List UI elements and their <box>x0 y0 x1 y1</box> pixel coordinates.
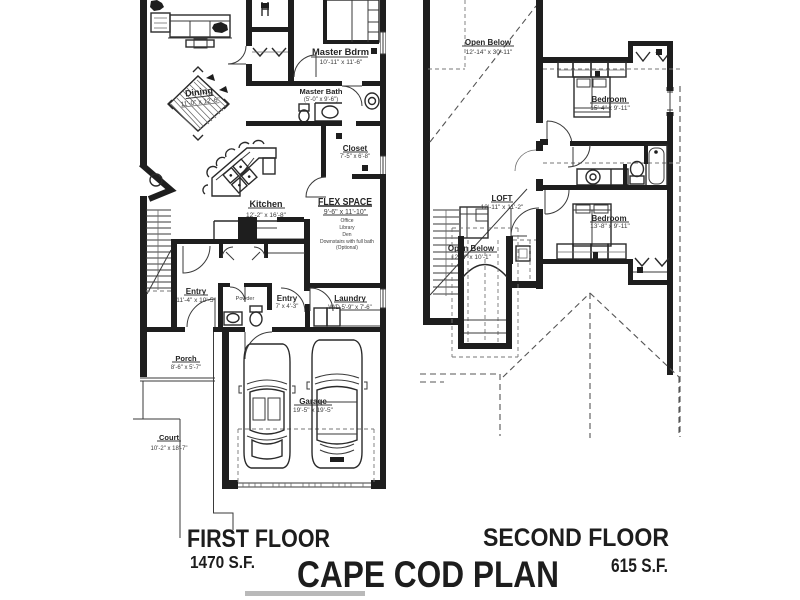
svg-text:8'-6" x 5'-7": 8'-6" x 5'-7" <box>171 365 201 371</box>
svg-text:Den: Den <box>342 232 351 238</box>
svg-text:7' x 4'-3": 7' x 4'-3" <box>276 304 299 310</box>
svg-text:19'-5" x 19'-5": 19'-5" x 19'-5" <box>293 407 334 414</box>
svg-text:10'-11" x 11'-6": 10'-11" x 11'-6" <box>320 59 363 66</box>
svg-text:Entry: Entry <box>277 294 298 303</box>
svg-text:Library: Library <box>339 225 355 231</box>
svg-text:FIRST FLOOR: FIRST FLOOR <box>187 525 330 553</box>
svg-text:7'-5" x 6'-8": 7'-5" x 6'-8" <box>340 154 370 160</box>
svg-text:SECOND FLOOR: SECOND FLOOR <box>483 524 669 552</box>
svg-text:(5'-0" x 9'-6"): (5'-0" x 9'-6") <box>304 97 338 103</box>
svg-text:1470 S.F.: 1470 S.F. <box>190 552 255 572</box>
svg-text:615 S.F.: 615 S.F. <box>611 556 668 577</box>
svg-text:12'-2" x 10'-1": 12'-2" x 10'-1" <box>451 254 492 261</box>
svg-text:15'-4" x 9'-11": 15'-4" x 9'-11" <box>590 105 630 112</box>
svg-text:Master Bath: Master Bath <box>300 87 343 96</box>
svg-text:12'-14" x 30'-11": 12'-14" x 30'-11" <box>466 49 513 56</box>
svg-text:Powder: Powder <box>236 296 255 302</box>
svg-text:11'-4" x 10'-5": 11'-4" x 10'-5" <box>176 297 216 304</box>
svg-text:13'-8" x 9'-11": 13'-8" x 9'-11" <box>590 223 630 230</box>
svg-text:(Optional): (Optional) <box>336 245 358 251</box>
svg-text:Master Bdrm: Master Bdrm <box>312 47 369 57</box>
svg-text:CAPE COD PLAN: CAPE COD PLAN <box>297 554 559 595</box>
svg-text:Office: Office <box>341 218 354 224</box>
svg-text:10'-2" x 18'-7": 10'-2" x 18'-7" <box>151 446 188 452</box>
